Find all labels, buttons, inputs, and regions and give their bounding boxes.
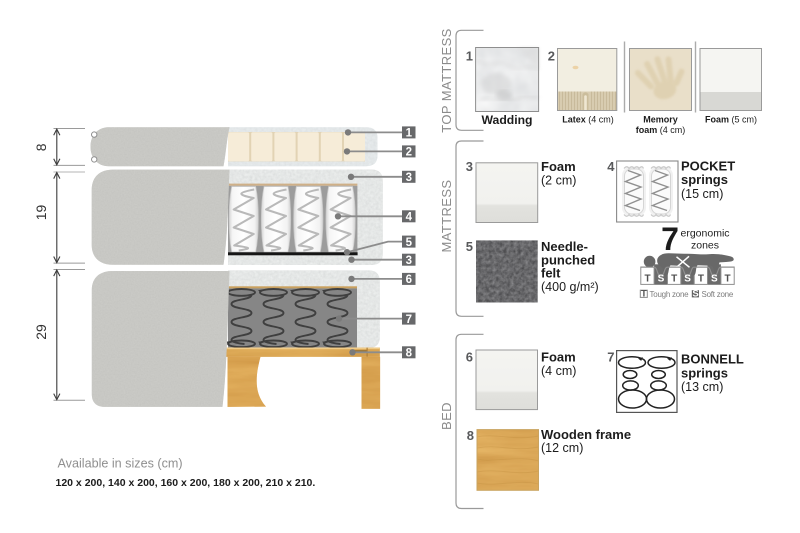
svg-text:Memory: Memory xyxy=(643,115,678,125)
svg-text:BED: BED xyxy=(439,402,454,430)
svg-text:1: 1 xyxy=(406,128,413,140)
svg-text:(4 cm): (4 cm) xyxy=(541,364,576,378)
svg-text:29: 29 xyxy=(33,324,49,340)
svg-text:S: S xyxy=(711,273,718,284)
svg-text:7: 7 xyxy=(607,350,614,365)
svg-text:(2 cm): (2 cm) xyxy=(541,173,576,187)
svg-text:Available in sizes (cm): Available in sizes (cm) xyxy=(58,456,183,470)
svg-text:19: 19 xyxy=(33,205,49,221)
svg-text:BONNELL: BONNELL xyxy=(681,352,744,367)
svg-text:3: 3 xyxy=(406,255,412,267)
svg-text:6: 6 xyxy=(406,274,412,286)
svg-text:5: 5 xyxy=(406,237,413,249)
svg-text:T: T xyxy=(671,273,677,284)
svg-text:7: 7 xyxy=(661,221,679,257)
svg-text:T: T xyxy=(725,273,731,284)
svg-text:6: 6 xyxy=(466,350,473,365)
svg-text:springs: springs xyxy=(681,172,728,187)
svg-text:Tough zone: Tough zone xyxy=(650,290,690,299)
svg-text:3: 3 xyxy=(406,172,412,184)
svg-text:120 x 200, 140 x 200, 160 x 20: 120 x 200, 140 x 200, 160 x 200, 180 x 2… xyxy=(56,477,316,489)
svg-text:S: S xyxy=(658,273,665,284)
svg-text:Wadding: Wadding xyxy=(482,113,533,127)
svg-text:zones: zones xyxy=(691,240,719,252)
svg-text:Soft zone: Soft zone xyxy=(702,290,734,299)
svg-text:2: 2 xyxy=(406,147,412,159)
svg-text:TOP MATTRESS: TOP MATTRESS xyxy=(439,28,454,132)
svg-text:MATTRESS: MATTRESS xyxy=(439,179,454,252)
svg-text:Latex (4 cm): Latex (4 cm) xyxy=(562,115,614,125)
svg-text:T: T xyxy=(645,273,651,284)
svg-text:T: T xyxy=(641,289,647,300)
svg-text:(15 cm): (15 cm) xyxy=(681,187,723,201)
svg-text:8: 8 xyxy=(33,143,49,151)
svg-text:1: 1 xyxy=(466,48,473,63)
svg-text:S: S xyxy=(692,289,698,300)
svg-text:Foam: Foam xyxy=(541,159,576,174)
svg-text:(12 cm): (12 cm) xyxy=(541,441,583,455)
svg-text:8: 8 xyxy=(467,428,474,443)
svg-text:7: 7 xyxy=(406,314,412,326)
svg-text:8: 8 xyxy=(406,348,413,360)
svg-text:(13 cm): (13 cm) xyxy=(681,380,723,394)
svg-text:ergonomic: ergonomic xyxy=(681,228,730,240)
svg-text:(400 g/m²): (400 g/m²) xyxy=(541,280,599,294)
svg-text:S: S xyxy=(684,273,691,284)
svg-text:4: 4 xyxy=(607,159,615,174)
svg-text:foam (4 cm): foam (4 cm) xyxy=(636,125,686,135)
svg-text:felt: felt xyxy=(541,266,561,281)
svg-text:4: 4 xyxy=(406,212,413,224)
svg-text:5: 5 xyxy=(466,239,473,254)
svg-text:Foam: Foam xyxy=(541,350,576,365)
svg-text:springs: springs xyxy=(681,365,728,380)
svg-text:3: 3 xyxy=(466,159,473,174)
svg-text:T: T xyxy=(698,273,704,284)
svg-text:2: 2 xyxy=(548,48,555,63)
svg-text:Foam (5 cm): Foam (5 cm) xyxy=(705,115,757,125)
